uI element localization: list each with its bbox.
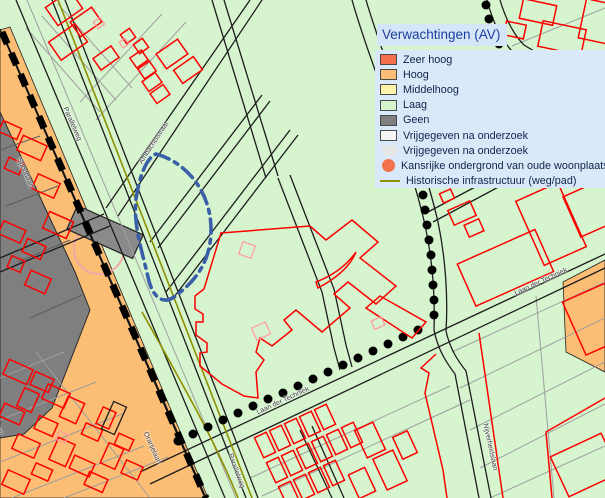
legend-label: Zeer hoog xyxy=(403,54,452,66)
legend-item-laag: Laag xyxy=(380,98,605,113)
legend-item-vrijgegeven-1: Vrijgegeven na onderzoek xyxy=(380,128,605,143)
legend-panel: Zeer hoog Hoog Middelhoog Laag Geen Vrij… xyxy=(375,50,605,188)
legend-item-geen: Geen xyxy=(380,113,605,128)
legend-swatch-vrijgegeven-icon xyxy=(380,130,397,141)
legend-label: Geen xyxy=(403,114,429,126)
legend-label: Middelhoog xyxy=(403,84,459,96)
legend-label: Historische infrastructuur (weg/pad) xyxy=(406,175,576,187)
map-application: Parallelweg Spoorlaan Ambachtsstraat Laa… xyxy=(0,0,605,498)
legend-label: Laag xyxy=(403,99,427,111)
legend-swatch-zeer-hoog-icon xyxy=(380,54,397,65)
legend-label: Hoog xyxy=(403,69,429,81)
legend-label: Vrijgegeven na onderzoek xyxy=(403,145,528,157)
legend-swatch-dot-icon xyxy=(382,159,395,172)
legend-swatch-hoog-icon xyxy=(380,69,397,80)
legend-swatch-line-icon xyxy=(380,180,400,182)
legend-title: Verwachtingen (AV) xyxy=(377,24,507,46)
legend-label: Kansrijke ondergrond van oude woonplaats… xyxy=(401,160,605,172)
legend-swatch-laag-icon xyxy=(380,100,397,111)
legend-item-hoog: Hoog xyxy=(380,67,605,82)
legend-label: Vrijgegeven na onderzoek xyxy=(403,130,528,142)
legend-item-kansrijke-ondergrond: Kansrijke ondergrond van oude woonplaats… xyxy=(380,158,605,173)
legend-swatch-middelhoog-icon xyxy=(380,84,397,95)
legend-swatch-vrijgegeven-blob-icon xyxy=(382,145,397,156)
legend-item-vrijgegeven-2: Vrijgegeven na onderzoek xyxy=(380,143,605,158)
legend-item-middelhoog: Middelhoog xyxy=(380,82,605,97)
legend-item-zeer-hoog: Zeer hoog xyxy=(380,52,605,67)
legend-item-historische-infrastructuur: Historische infrastructuur (weg/pad) xyxy=(380,174,605,189)
legend-swatch-geen-icon xyxy=(380,115,397,126)
